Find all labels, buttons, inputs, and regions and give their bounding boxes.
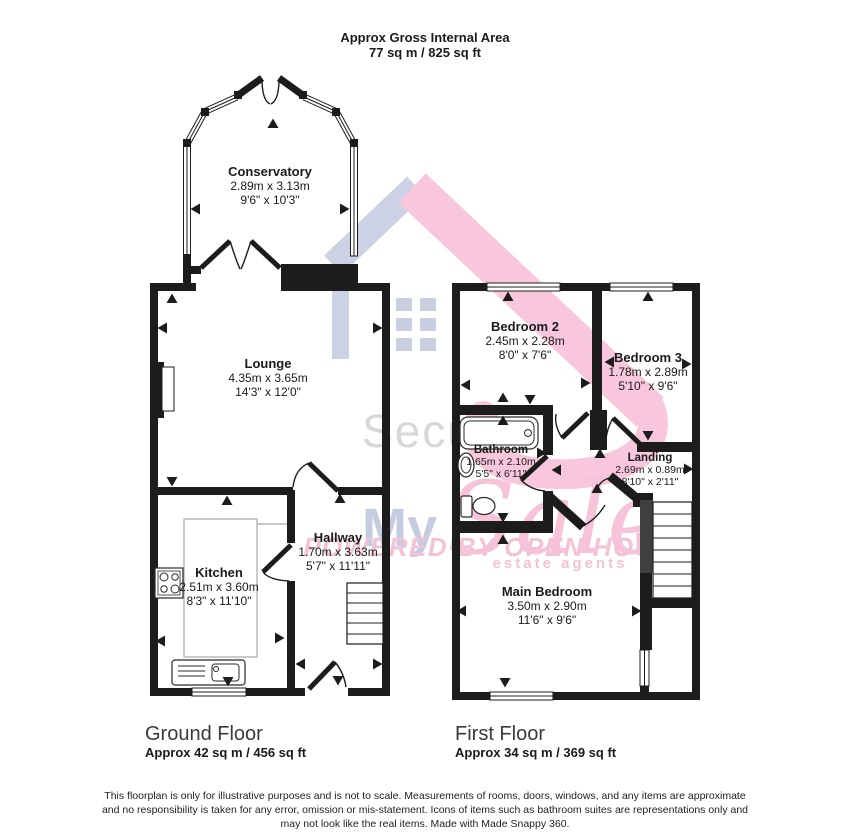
wall <box>348 688 390 696</box>
first-floor-label: First Floor <box>455 723 545 745</box>
ground-floor-label: Ground Floor <box>145 723 263 745</box>
wall <box>281 283 390 291</box>
room-metric: 2.89m x 3.13m <box>230 179 309 193</box>
room-metric: 4.35m x 3.65m <box>228 371 307 385</box>
room-metric: 2.45m x 2.28m <box>485 334 564 348</box>
window <box>640 650 649 686</box>
wall <box>338 487 390 495</box>
wall <box>287 581 295 696</box>
ground-floor-plan: Conservatory 2.89m x 3.13m 9'6" x 10'3" … <box>150 78 390 696</box>
room-name: Bedroom 2 <box>491 319 559 334</box>
floorplan-canvas: Secure My Sale POWERED BY OPEN HOUSE ‖ e… <box>0 0 850 836</box>
room-lounge: Lounge 4.35m x 3.65m 14'3" x 12'0" <box>150 283 390 495</box>
floor-captions: Ground Floor Approx 42 sq m / 456 sq ft … <box>145 723 617 760</box>
room-label-bathroom: Bathroom 1.65m x 2.10m 5'5" x 6'11" <box>466 444 536 480</box>
room-imperial: 8'0" x 7'6" <box>499 348 551 362</box>
window <box>192 688 246 696</box>
room-imperial: 8'3" x 11'10" <box>187 594 252 608</box>
staircase <box>653 502 692 598</box>
room-metric: 3.50m x 2.90m <box>507 599 586 613</box>
wall <box>150 487 293 495</box>
room-label-bedroom2: Bedroom 2 2.45m x 2.28m 8'0" x 7'6" <box>485 319 564 362</box>
room-metric: 2.51m x 3.60m <box>179 580 258 594</box>
room-metric: 2.69m x 0.89m <box>615 464 685 476</box>
wall <box>183 266 201 274</box>
header: Approx Gross Internal Area 77 sq m / 825… <box>340 30 510 60</box>
room-kitchen: Kitchen 2.51m x 3.60m 8'3" x 11'10" <box>150 490 295 696</box>
room-name: Landing <box>628 452 673 464</box>
disclaimer-line-2: and no responsibility is taken for any e… <box>102 804 748 816</box>
page-title: Approx Gross Internal Area <box>340 30 510 45</box>
watermark-text-tagline: estate agents <box>493 555 628 572</box>
disclaimer: This floorplan is only for illustrative … <box>102 790 748 830</box>
french-door <box>201 241 280 269</box>
room-imperial: 5'7" x 11'11" <box>306 559 370 573</box>
stair-side-wall <box>640 500 653 573</box>
room-label-main-bedroom: Main Bedroom 3.50m x 2.90m 11'6" x 9'6" <box>502 584 592 627</box>
wall <box>295 688 305 696</box>
room-name: Main Bedroom <box>502 584 592 599</box>
room-imperial: 8'10" x 2'11" <box>622 476 679 488</box>
room-metric: 1.78m x 2.89m <box>608 365 687 379</box>
disclaimer-line-3: may not look like the real items. Made w… <box>281 818 570 830</box>
room-name: Conservatory <box>228 164 313 179</box>
door <box>293 463 338 491</box>
door <box>263 545 291 581</box>
room-label-lounge: Lounge 4.35m x 3.65m 14'3" x 12'0" <box>228 356 307 399</box>
room-imperial: 11'6" x 9'6" <box>518 613 576 627</box>
room-name: Bathroom <box>474 444 528 456</box>
door <box>556 413 588 438</box>
room-label-conservatory: Conservatory 2.89m x 3.13m 9'6" x 10'3" <box>228 164 313 207</box>
room-imperial: 14'3" x 12'0" <box>235 385 301 399</box>
room-metric: 1.70m x 3.63m <box>298 545 377 559</box>
wall <box>150 688 192 696</box>
disclaimer-line-1: This floorplan is only for illustrative … <box>104 790 746 802</box>
fireplace-icon <box>162 367 174 411</box>
watermark-window-grid <box>396 298 436 351</box>
front-door <box>309 662 346 689</box>
first-floor-area: Approx 34 sq m / 369 sq ft <box>455 745 617 760</box>
page-subtitle: 77 sq m / 825 sq ft <box>369 45 482 60</box>
room-imperial: 9'6" x 10'3" <box>240 193 299 207</box>
room-metric: 1.65m x 2.10m <box>466 456 536 468</box>
french-door-arcs <box>262 79 279 104</box>
wall-corner-posts <box>183 91 358 147</box>
room-name: Lounge <box>245 356 292 371</box>
window <box>184 94 356 145</box>
room-imperial: 5'5" x 6'11" <box>476 468 527 480</box>
room-name: Kitchen <box>195 565 243 580</box>
ground-floor-area: Approx 42 sq m / 456 sq ft <box>145 745 307 760</box>
room-label-kitchen: Kitchen 2.51m x 3.60m 8'3" x 11'10" <box>179 565 258 608</box>
watermark-house-wall <box>332 247 349 359</box>
sink-icon <box>172 660 245 685</box>
room-name: Hallway <box>314 530 363 545</box>
wall <box>382 283 390 495</box>
room-imperial: 5'10" x 9'6" <box>618 379 677 393</box>
staircase <box>347 583 383 644</box>
room-label-bedroom3: Bedroom 3 1.78m x 2.89m 5'10" x 9'6" <box>608 350 687 393</box>
wall <box>287 490 295 543</box>
floorplan-page: Secure My Sale POWERED BY OPEN HOUSE ‖ e… <box>0 0 850 836</box>
room-name: Bedroom 3 <box>614 350 682 365</box>
